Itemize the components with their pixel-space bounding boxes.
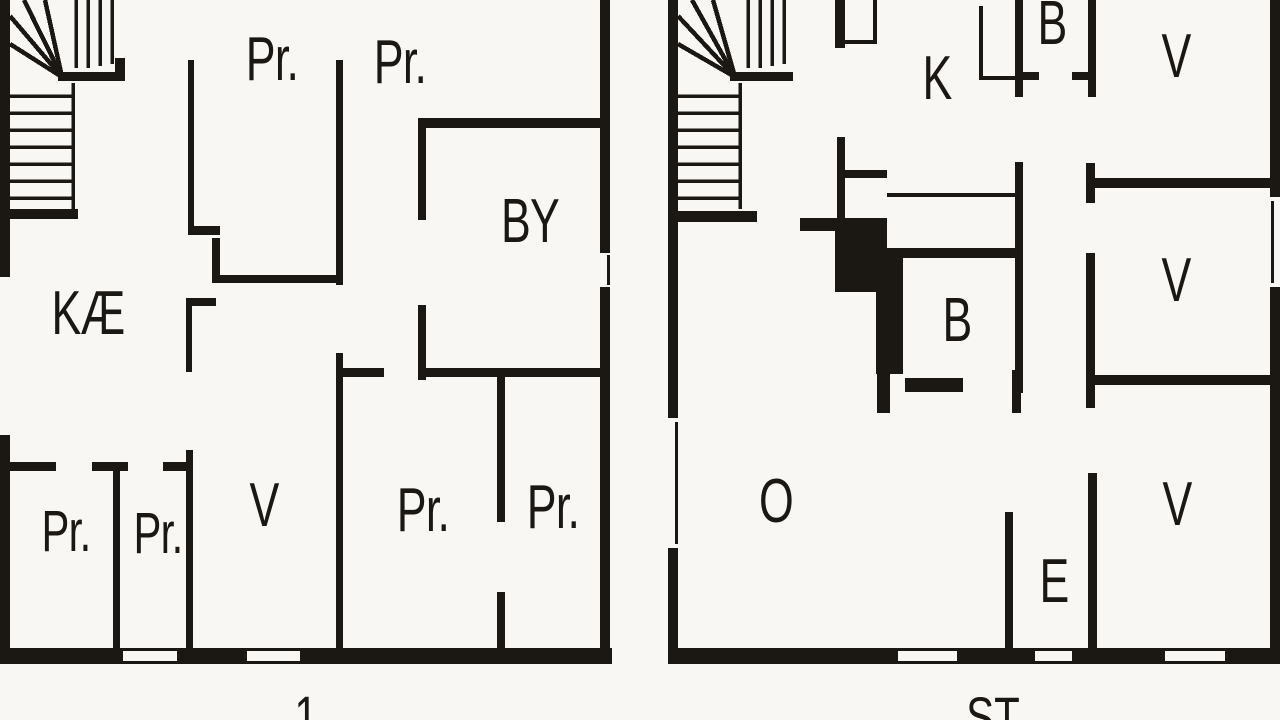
room-label-pr-top-right: Pr.: [374, 32, 426, 94]
room-label-e: E: [1039, 551, 1068, 613]
right-plan-walls: [668, 0, 1280, 664]
room-label-pr-top-left: Pr.: [246, 29, 298, 91]
room-label-pr-bottom-1: Pr.: [42, 503, 91, 561]
left-plan-staircase: [10, 0, 125, 219]
room-label-pr-bottom-3: Pr.: [397, 480, 449, 542]
room-label-by: BY: [501, 191, 559, 253]
room-label-b-mid: B: [942, 290, 971, 352]
floor-label-1: 1: [294, 688, 317, 720]
floor-label-st: ST: [966, 689, 1020, 720]
floor-plan-screenshot: Pr. Pr. BY KÆ Pr. Pr. V Pr. Pr. 1 B K V …: [0, 0, 1280, 720]
room-label-k: K: [922, 48, 951, 110]
room-label-kae: KÆ: [52, 283, 125, 345]
right-plan-staircase: [670, 0, 793, 222]
room-label-b-top: B: [1037, 0, 1066, 55]
room-label-v-mid: V: [1161, 250, 1190, 312]
room-label-pr-bottom-4: Pr.: [527, 477, 579, 539]
room-label-v-top: V: [1161, 26, 1190, 88]
room-label-pr-bottom-2: Pr.: [134, 505, 183, 563]
room-label-v-left-plan: V: [249, 475, 278, 537]
floor-plan-walls-drawing: [0, 0, 1280, 720]
room-label-o: O: [759, 471, 793, 533]
room-label-v-bottom: V: [1162, 474, 1191, 536]
